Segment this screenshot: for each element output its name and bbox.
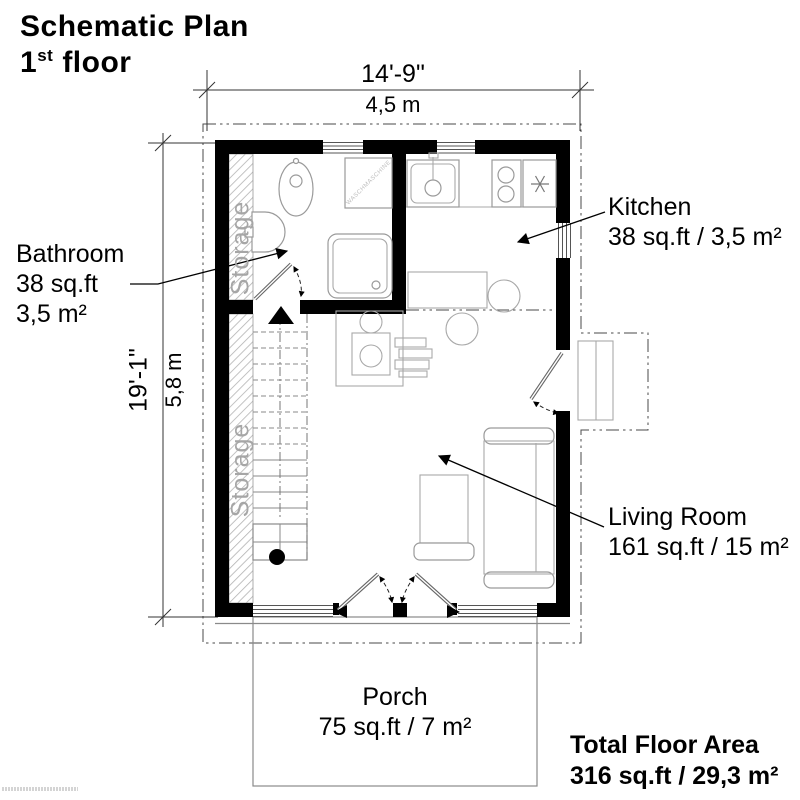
living-room-exterior-door	[531, 341, 613, 420]
desk-area	[336, 311, 432, 386]
shelf-icon	[399, 349, 432, 358]
window-kitchen-top	[432, 140, 480, 154]
bathroom-area-m: 3,5 m²	[16, 299, 124, 329]
bathroom-area-ft: 38 sq.ft	[16, 269, 124, 299]
porch-name: Porch	[319, 682, 472, 712]
storage-label-upper: Storage	[227, 201, 256, 296]
page-subtitle: 1stfloor	[20, 46, 131, 80]
sofa-icon	[484, 441, 554, 574]
armchair-icon	[420, 475, 468, 543]
wall-top-1	[215, 140, 318, 154]
wall-bathroom-bottom-2	[300, 300, 406, 314]
dim-top-metric: 4,5 m	[365, 92, 420, 118]
wall-bathroom-right	[392, 140, 406, 314]
floor-word: floor	[62, 46, 131, 79]
living-room-furniture	[414, 428, 554, 588]
dim-top-imperial: 14'-9"	[361, 60, 425, 89]
shelf-icon	[395, 360, 429, 369]
floor-plan-page: Schematic Plan 1stfloor 14'-9" 4,5 m 19'…	[0, 0, 800, 800]
walls	[215, 140, 570, 617]
floor-number: 1	[20, 46, 37, 79]
bathroom-sink-icon	[252, 212, 285, 252]
living-room-label: Living Room 161 sq.ft / 15 m²	[608, 502, 789, 562]
dim-left-metric: 5,8 m	[161, 352, 187, 407]
desk-chair-icon	[360, 311, 382, 333]
dining-table-icon	[408, 272, 487, 308]
kitchen-label: Kitchen 38 sq.ft / 3,5 m²	[608, 192, 782, 252]
shelf-icon	[395, 338, 426, 347]
floor-ordinal-suffix: st	[37, 46, 53, 65]
living-room-area: 161 sq.ft / 15 m²	[608, 532, 789, 562]
door-center-post	[393, 603, 407, 617]
dim-left-imperial: 19'-1"	[125, 348, 154, 412]
wall-right-1	[556, 140, 570, 218]
kitchen-fixtures	[406, 153, 556, 345]
stair-direction-arrow	[268, 306, 294, 324]
stair-newel-post	[269, 549, 285, 565]
staircase	[253, 306, 307, 565]
wall-right-2	[556, 263, 570, 348]
kitchen-area: 38 sq.ft / 3,5 m²	[608, 222, 782, 252]
shower-icon	[328, 234, 392, 298]
bathroom-door	[255, 264, 301, 299]
bathroom-label: Bathroom 38 sq.ft 3,5 m²	[16, 239, 124, 329]
living-room-leader	[439, 456, 604, 527]
watermark-microtext	[2, 787, 78, 791]
total-floor-area: Total Floor Area 316 sq.ft / 29,3 m²	[570, 730, 778, 792]
total-label: Total Floor Area	[570, 730, 778, 761]
toilet-icon	[279, 162, 313, 216]
bathroom-name: Bathroom	[16, 239, 124, 269]
window-bathroom-top	[318, 140, 368, 154]
sofa-armrest	[484, 428, 554, 444]
total-value: 316 sq.ft / 29,3 m²	[570, 761, 778, 792]
wall-bottom-right	[537, 603, 570, 617]
wall-bathroom-bottom-1	[229, 300, 253, 314]
kitchen-name: Kitchen	[608, 192, 782, 222]
porch-label: Porch 75 sq.ft / 7 m²	[319, 682, 472, 742]
chair-icon	[446, 313, 478, 345]
storage-label-lower: Storage	[227, 423, 256, 518]
floor-plan-drawing	[0, 0, 800, 800]
wall-right-3	[556, 413, 570, 617]
porch-area: 75 sq.ft / 7 m²	[319, 712, 472, 742]
living-room-name: Living Room	[608, 502, 789, 532]
bathroom-leader	[130, 251, 287, 284]
page-title: Schematic Plan	[20, 10, 249, 44]
chair-icon	[488, 280, 520, 312]
wall-bottom-left	[215, 603, 253, 617]
